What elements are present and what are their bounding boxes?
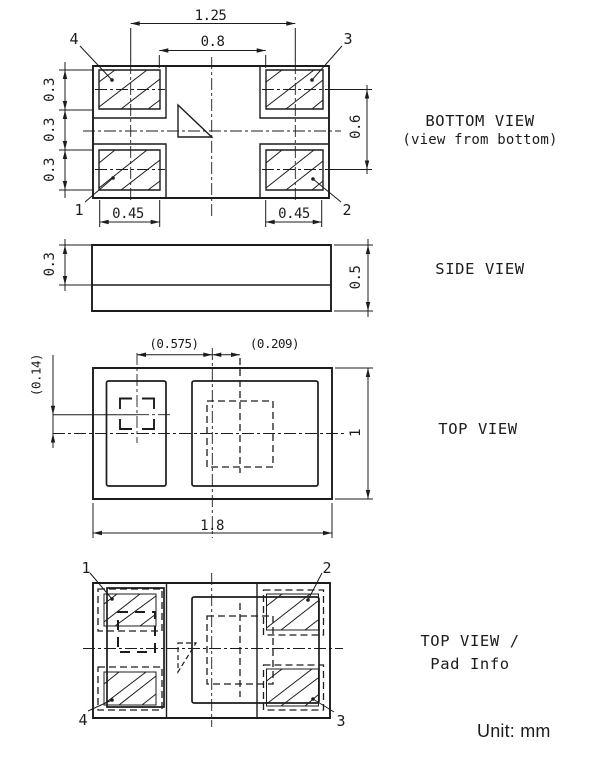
package-drawing-sheet: 1.25 0.8 0.3 0.3 0.3 0.6 0.45 0.45 4 3 1… (0, 0, 603, 763)
side-view: 0.3 0.5 (42, 239, 373, 317)
dim-0-3-top: 0.3 (42, 78, 58, 102)
bottom-pin-3: 3 (343, 30, 352, 48)
dim-0-209: (0.209) (250, 336, 299, 351)
notch-tr (260, 66, 329, 118)
dim-1-8: 1.8 (200, 518, 224, 534)
dim-0-45-right: 0.45 (278, 206, 310, 222)
pin1-triangle-marker (178, 105, 212, 137)
unit-note: Unit: mm (477, 721, 551, 742)
dim-0-14: (0.14) (29, 354, 44, 396)
bottom-dimensions (59, 21, 372, 227)
dim-side-0-3: 0.3 (42, 253, 58, 277)
side-view-title: SIDE VIEW (400, 260, 560, 278)
pad-bl-hatched (99, 150, 160, 190)
dim-0-575: (0.575) (149, 336, 198, 351)
padinfo-pin-3: 3 (336, 712, 345, 730)
padinfo-pin-4: 4 (78, 711, 87, 729)
padinfo-feature-square (118, 612, 155, 652)
pad-info-title: TOP VIEW / (395, 632, 545, 650)
bottom-pin-1: 1 (74, 201, 83, 219)
side-package-outline (92, 245, 331, 311)
pad-info-subtitle: Pad Info (395, 655, 545, 673)
dim-side-0-5: 0.5 (348, 266, 364, 290)
dim-0-8: 0.8 (201, 34, 225, 50)
dim-1: 1 (348, 429, 364, 437)
bottom-view: 1.25 0.8 0.3 0.3 0.3 0.6 0.45 0.45 4 3 1… (42, 8, 372, 227)
top-view: (0.575) (0.209) (0.14) 1.8 1 (29, 336, 374, 538)
side-dimensions (59, 239, 373, 317)
bottom-view-subtitle: (view from bottom) (398, 132, 562, 148)
top-view-title: TOP VIEW (398, 420, 558, 438)
bottom-view-title: BOTTOM VIEW (400, 112, 560, 130)
dim-0-6: 0.6 (348, 115, 364, 139)
bottom-pin-4: 4 (69, 30, 78, 48)
padinfo-pin-2: 2 (322, 559, 331, 577)
bottom-pin-2: 2 (342, 201, 351, 219)
dim-0-45-left: 0.45 (112, 206, 144, 222)
padinfo-pin-1: 1 (81, 559, 90, 577)
padinfo-hidden-triangle (178, 643, 196, 672)
pad-br-hatched (266, 150, 323, 190)
padinfo-right-cavity (192, 597, 319, 703)
notch-tl (93, 66, 166, 118)
dim-1-25: 1.25 (195, 8, 227, 24)
top-left-cavity (107, 381, 167, 486)
dim-0-3-mid: 0.3 (42, 118, 58, 142)
pad-info-view: 1 2 4 3 (78, 559, 345, 730)
dim-0-3-bottom: 0.3 (42, 158, 58, 182)
